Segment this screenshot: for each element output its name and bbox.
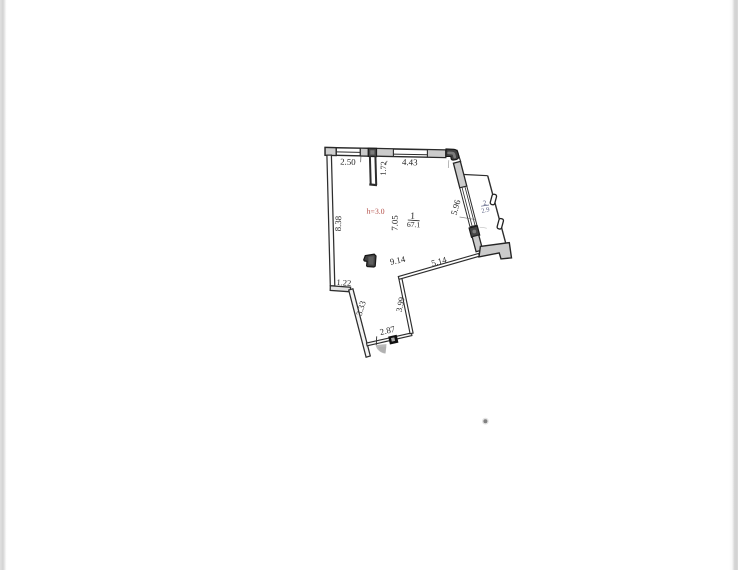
svg-text:h=3.0: h=3.0 [366, 207, 384, 216]
svg-text:1.22: 1.22 [336, 278, 351, 288]
svg-text:7.05: 7.05 [390, 215, 400, 231]
svg-text:4.43: 4.43 [402, 157, 419, 168]
svg-text:8.38: 8.38 [333, 215, 343, 231]
svg-text:67.1: 67.1 [407, 220, 421, 229]
svg-text:2.50: 2.50 [340, 157, 356, 168]
svg-text:1.72: 1.72 [379, 161, 388, 176]
